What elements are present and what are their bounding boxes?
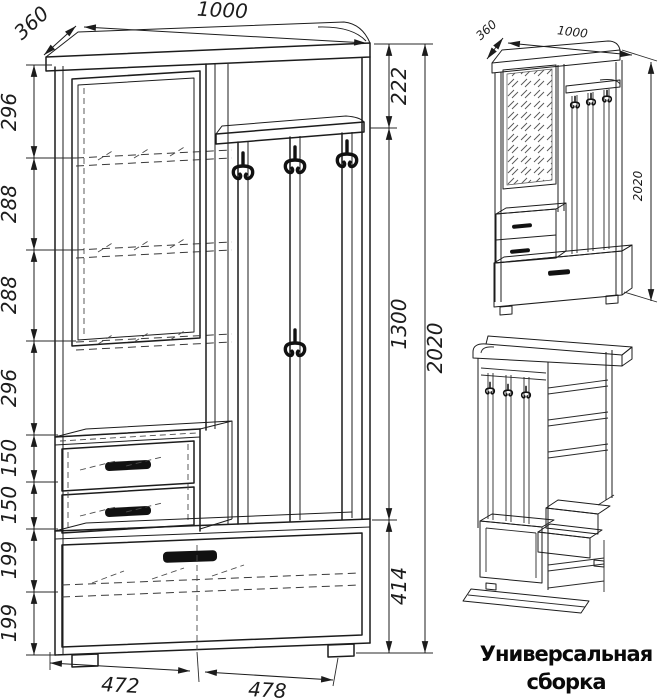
iso-shoe-cabinet — [494, 245, 632, 315]
dim-label-width: 1000 — [556, 23, 588, 41]
hallway-unit-drawing: 296 288 288 296 150 150 199 199 222 1300… — [0, 0, 665, 700]
cabinet-foot — [594, 560, 604, 567]
dim-label: 288 — [0, 276, 21, 314]
dim-left-chain: 296 288 288 296 150 150 199 199 — [0, 65, 76, 655]
iso-shelf — [566, 80, 620, 94]
drawer-handle — [562, 517, 582, 520]
coat-hook-icon — [233, 153, 252, 179]
coat-hook-icon — [285, 147, 304, 173]
iso2-shelf-column — [548, 350, 614, 592]
caption-line-2: сборка — [527, 670, 606, 694]
coat-hook-icon — [337, 141, 356, 167]
dim-label-width: 1000 — [196, 0, 248, 23]
drawer-handle — [512, 223, 532, 229]
iso-mirror — [503, 65, 556, 189]
drawer-module — [55, 421, 232, 533]
dim-label: 199 — [0, 541, 21, 579]
dim-label: 222 — [387, 67, 411, 105]
dim-label-depth: 360 — [473, 17, 500, 43]
dim-label: 414 — [387, 567, 411, 605]
dim-label: 478 — [248, 677, 287, 700]
technical-drawing-page: 296 288 288 296 150 150 199 199 222 1300… — [0, 0, 665, 700]
dim-label-height: 2020 — [631, 170, 645, 201]
dim-label: 150 — [0, 486, 21, 524]
cabinet-handle — [548, 269, 570, 276]
hidden-shelf-lines — [76, 146, 232, 350]
cabinet-foot — [500, 306, 512, 315]
iso-assembled-view: 360 1000 2020 — [473, 17, 657, 315]
caption: Универсальная сборка — [480, 642, 652, 694]
shoe-cabinet — [55, 512, 370, 667]
iso2-canopy — [473, 336, 632, 366]
iso-universal-view — [463, 336, 632, 613]
center-divider — [206, 63, 215, 430]
canopy-top-board — [46, 22, 370, 71]
dim-label: 150 — [0, 439, 21, 477]
cabinet-handle — [163, 550, 217, 563]
dim-label-depth: 360 — [9, 1, 53, 44]
iso2-open-drawer-1 — [546, 500, 610, 534]
dim-label: 199 — [0, 604, 21, 642]
mirror-panel — [72, 71, 200, 346]
caption-line-1: Универсальная — [480, 642, 652, 666]
iso-hook-slats — [571, 89, 612, 254]
dim-label: 1300 — [387, 299, 411, 350]
hook-panel — [228, 64, 357, 525]
cabinet-foot — [328, 644, 354, 657]
coat-hook-icon — [285, 330, 304, 356]
dim-label: 288 — [0, 185, 21, 223]
front-elevation-view: 296 288 288 296 150 150 199 199 222 1300… — [0, 0, 447, 700]
cabinet-flap-front — [62, 533, 362, 647]
right-side-panel — [362, 57, 370, 643]
dim-label: 296 — [0, 93, 21, 131]
iso2-open-flap — [463, 589, 589, 613]
dim-label-overall-height: 2020 — [423, 323, 447, 374]
iso-mirror-hatch — [507, 69, 552, 185]
drawer-handle — [554, 541, 574, 544]
dim-bottom: 472 478 — [50, 652, 338, 700]
dim-label: 296 — [0, 369, 21, 407]
mirror-hatch — [78, 78, 194, 340]
cabinet-foot — [486, 583, 496, 590]
iso2-bench — [480, 514, 554, 583]
iso2-hook-panel — [478, 358, 546, 528]
dim-label: 472 — [101, 672, 140, 698]
drawer-handle — [510, 248, 530, 254]
